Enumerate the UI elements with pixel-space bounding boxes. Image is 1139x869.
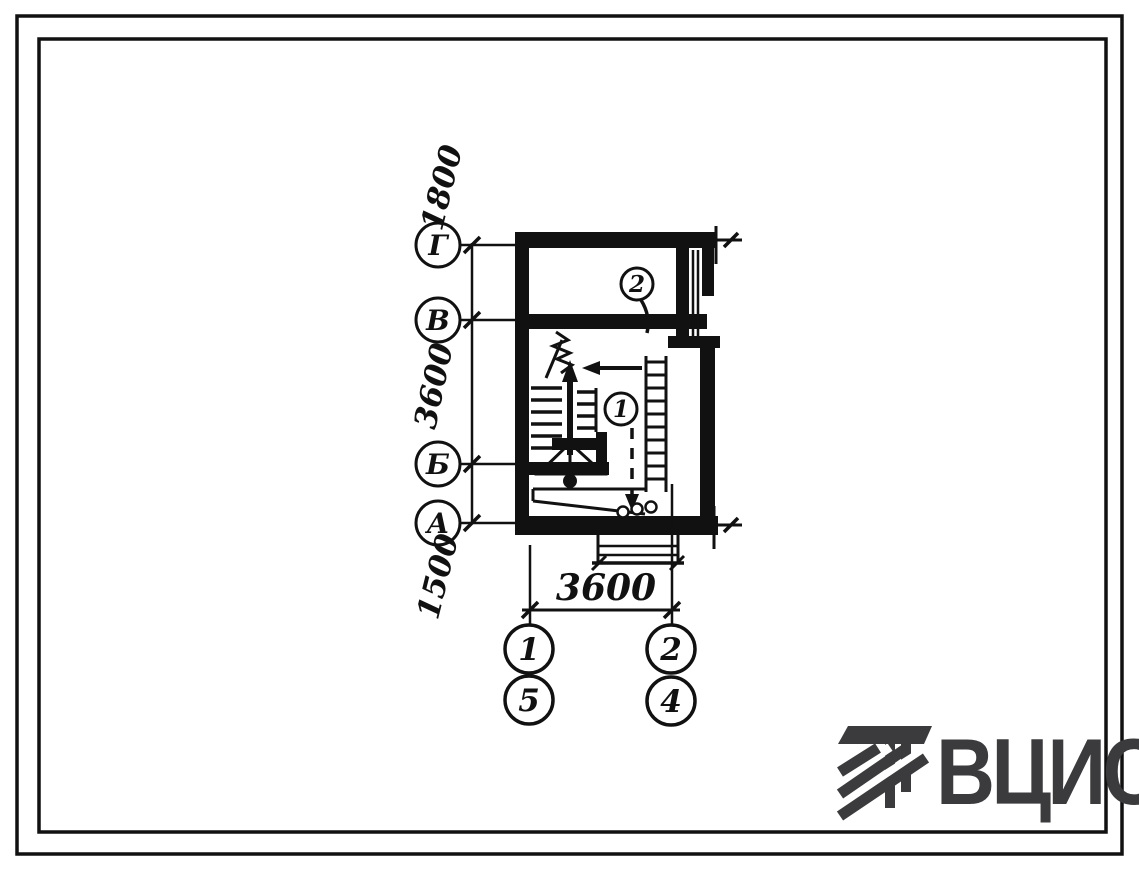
dim-text-1500: 1500 bbox=[410, 530, 466, 623]
row-axis-label-b: Б bbox=[425, 448, 450, 481]
column-dot bbox=[563, 474, 577, 488]
balcony-structure bbox=[668, 248, 720, 348]
door-dots bbox=[618, 502, 657, 518]
column-axis-label-5: 5 bbox=[518, 683, 540, 719]
callout-stair: 1 bbox=[605, 393, 637, 425]
floor-plan: 2 1 bbox=[515, 226, 742, 570]
dim-text-1800: 1800 bbox=[414, 141, 470, 234]
dim-text-3600-vertical: 3600 bbox=[408, 340, 461, 432]
ladder-flight bbox=[646, 356, 666, 492]
column-axis-label-2: 2 bbox=[659, 632, 682, 668]
entrance-porch bbox=[592, 535, 684, 570]
column-axis-label-1: 1 bbox=[518, 632, 540, 668]
callout-stair-label: 1 bbox=[613, 396, 629, 423]
logo-mark-icon bbox=[838, 726, 932, 816]
logo: ВЦИС bbox=[838, 720, 1139, 824]
column-axis-bubbles: 1 5 2 4 bbox=[505, 625, 695, 725]
row-axis-dimension-column bbox=[460, 237, 516, 531]
axis-extension-ticks bbox=[714, 226, 742, 549]
descent-dashed-arrow bbox=[625, 428, 639, 511]
drawing-sheet: Г В Б А 1800 3600 1500 bbox=[0, 0, 1139, 869]
row-axis-label-v: В bbox=[425, 304, 450, 337]
dim-text-3600-horizontal: 3600 bbox=[556, 567, 656, 609]
callout-room-label: 2 bbox=[628, 271, 645, 298]
logo-text: ВЦИС bbox=[936, 720, 1139, 824]
entry-arrow bbox=[582, 361, 642, 375]
column-axis-label-4: 4 bbox=[660, 684, 682, 720]
